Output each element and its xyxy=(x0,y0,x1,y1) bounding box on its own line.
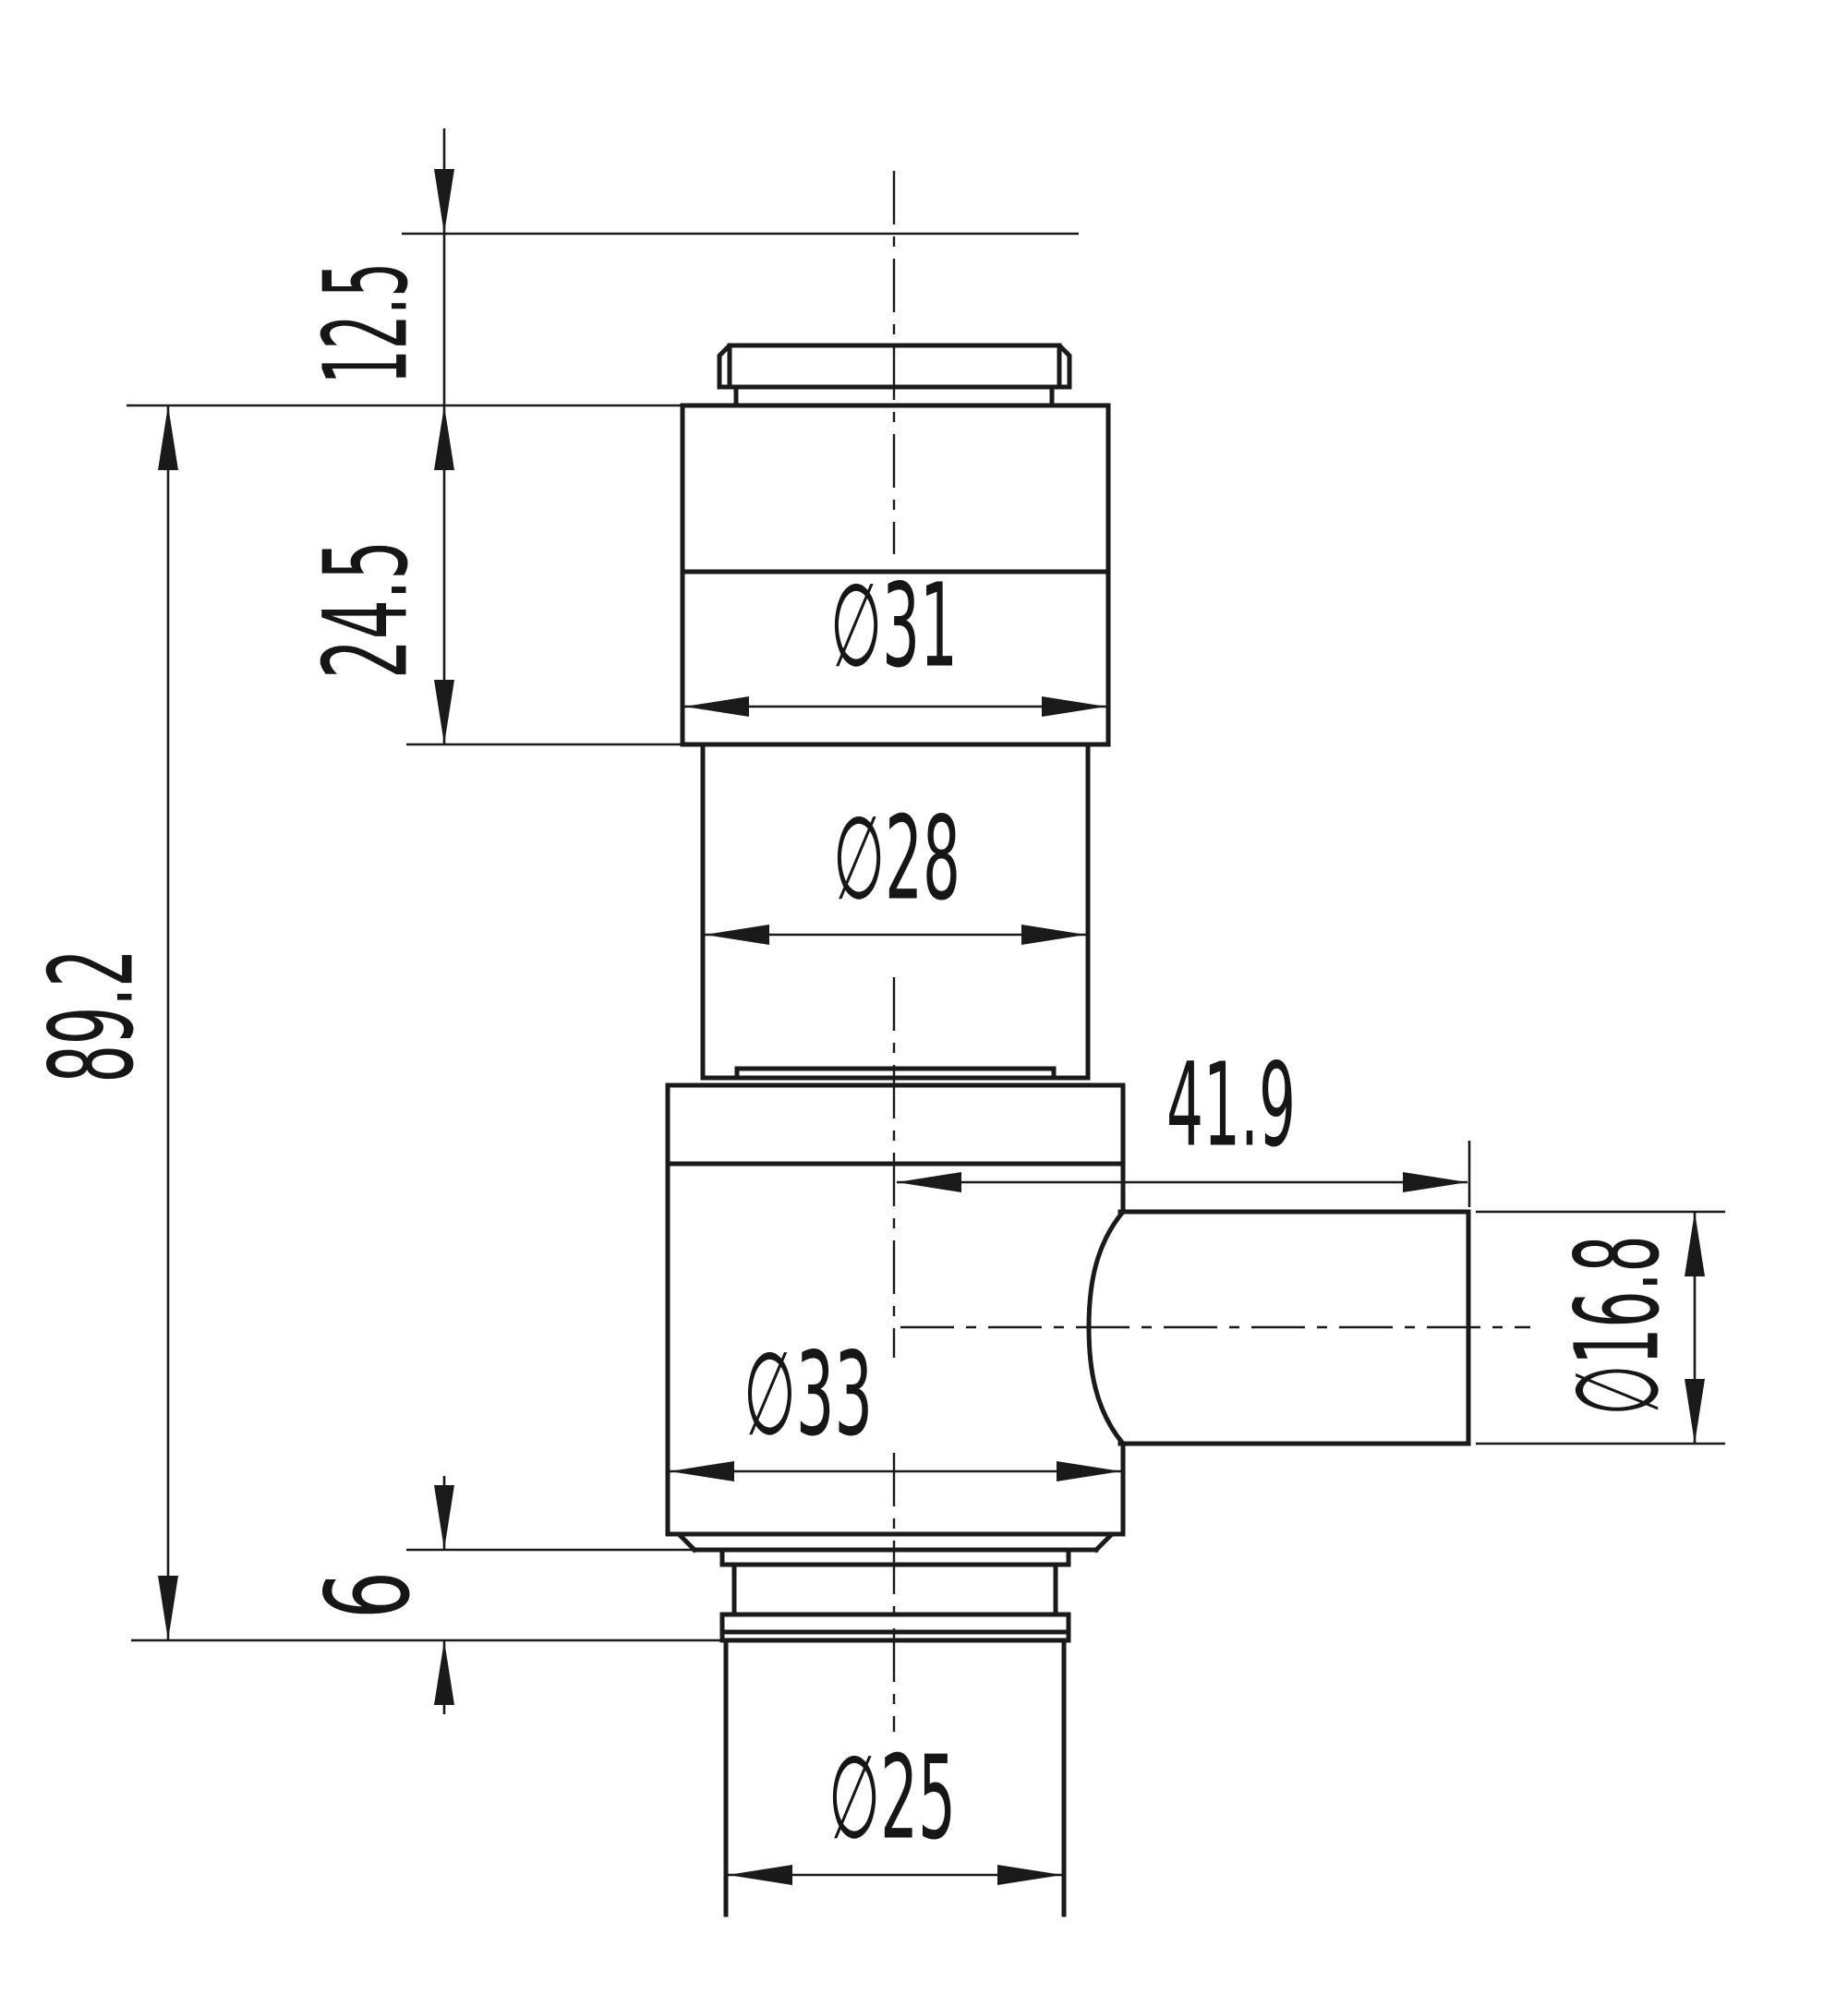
arrowhead xyxy=(1042,696,1106,717)
arrowhead xyxy=(1685,1212,1705,1276)
arrowhead xyxy=(434,680,454,744)
dim-label-24-5: 24.5 xyxy=(300,540,434,679)
arrowhead xyxy=(158,405,178,470)
arrowhead xyxy=(1403,1172,1468,1192)
arrowhead xyxy=(158,1576,178,1640)
arrowhead xyxy=(670,1461,734,1481)
dimension-labels: 12.5 24.5 89.2 6 ∅31 ∅28 ∅33 ∅25 41.9 ∅1… xyxy=(26,262,1685,1866)
part-outline xyxy=(668,345,1468,1915)
dim-label-dia28: ∅28 xyxy=(833,792,960,926)
dim-label-89-2: 89.2 xyxy=(26,949,160,1083)
dim-label-12-5: 12.5 xyxy=(300,262,434,384)
arrowhead xyxy=(434,169,454,234)
arrowheads xyxy=(158,169,1705,1885)
drawing-sheet: 12.5 24.5 89.2 6 ∅31 ∅28 ∅33 ∅25 41.9 ∅1… xyxy=(0,0,1848,1995)
arrowhead xyxy=(1685,1379,1705,1444)
arrowhead xyxy=(684,696,749,717)
arrowhead xyxy=(434,1640,454,1705)
dim-label-dia33: ∅33 xyxy=(743,1328,873,1462)
arrowhead xyxy=(434,405,454,470)
arrowhead xyxy=(897,1172,961,1192)
arrowhead xyxy=(434,1485,454,1550)
dim-label-dia25: ∅25 xyxy=(828,1732,956,1866)
arrowhead xyxy=(728,1865,792,1885)
bottom-flange-outline xyxy=(681,1536,1110,1640)
extension-lines xyxy=(127,234,1725,1640)
dim-label-dia16-8: ∅16.8 xyxy=(1552,1236,1685,1416)
technical-drawing: 12.5 24.5 89.2 6 ∅31 ∅28 ∅33 ∅25 41.9 ∅1… xyxy=(0,0,1848,1995)
arrowhead xyxy=(1057,1461,1121,1481)
arrowhead xyxy=(1021,925,1086,945)
arrowhead xyxy=(705,925,769,945)
main-body-outline xyxy=(668,1085,1123,1534)
dim-label-dia31: ∅31 xyxy=(830,560,958,694)
dim-label-41-9: 41.9 xyxy=(1166,1039,1296,1173)
dim-label-6: 6 xyxy=(302,1571,436,1619)
arrowhead xyxy=(997,1865,1062,1885)
